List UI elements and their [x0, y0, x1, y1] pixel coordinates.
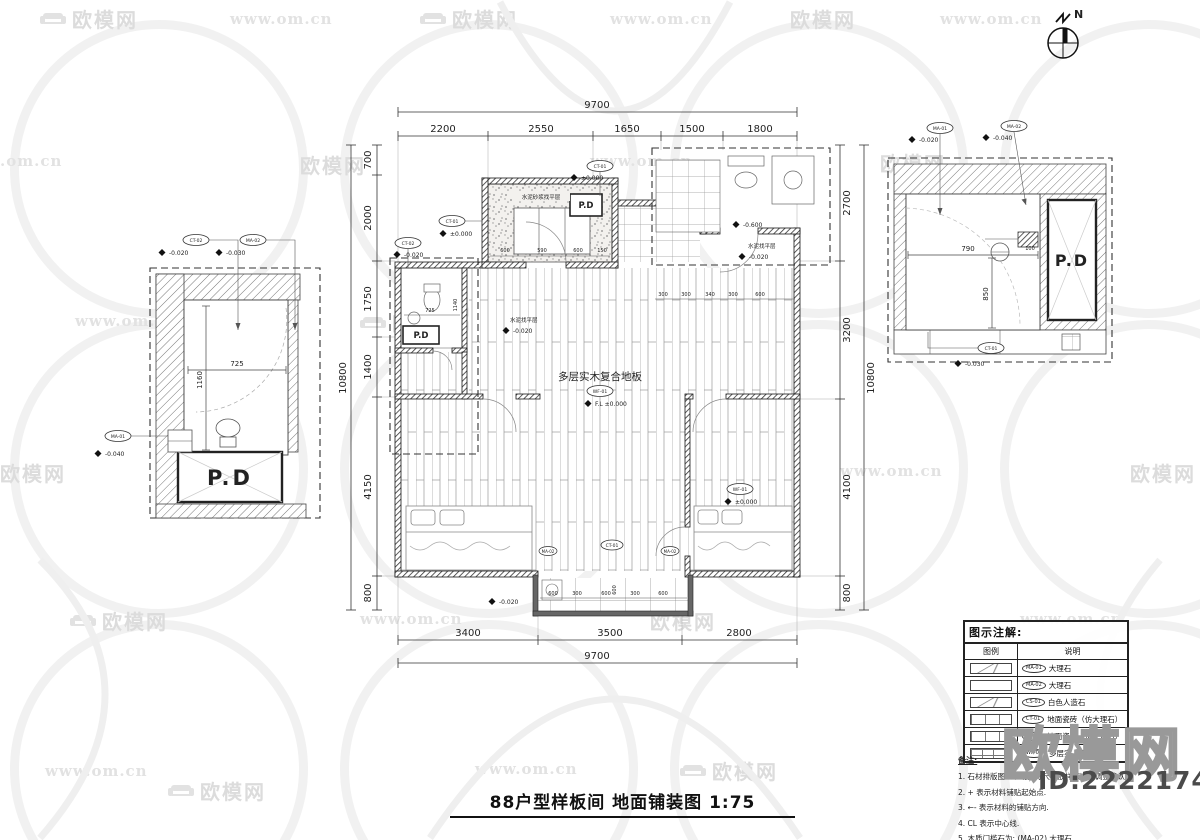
svg-text:300: 300: [572, 591, 582, 597]
svg-text:800: 800: [842, 583, 853, 602]
svg-text:MA-02: MA-02: [1007, 124, 1021, 130]
svg-text:-0.020: -0.020: [513, 328, 533, 335]
material-code: MA-02: [1022, 681, 1046, 690]
north-label: N: [1074, 8, 1083, 21]
svg-text:WF-01: WF-01: [733, 487, 748, 493]
svg-text:水泥找平层: 水泥找平层: [748, 242, 776, 250]
svg-text:CT-01: CT-01: [985, 346, 998, 352]
dim-chain-right: [800, 145, 869, 610]
floor-main-label: 多层实木复合地板: [558, 370, 642, 383]
svg-text:1500: 1500: [679, 124, 704, 135]
swatch-marble: [970, 663, 1012, 674]
svg-text:2200: 2200: [430, 124, 455, 135]
svg-text:F.L ±0.000: F.L ±0.000: [595, 401, 627, 408]
svg-text:3400: 3400: [455, 628, 480, 639]
dim-text-top: 9700 2200 2550 1650 1500 1800: [430, 100, 772, 135]
svg-text:-0.020: -0.020: [169, 250, 189, 257]
svg-text:3500: 3500: [597, 628, 622, 639]
svg-text:300: 300: [630, 591, 640, 597]
svg-text:4100: 4100: [842, 474, 853, 499]
svg-text:600: 600: [500, 248, 510, 254]
svg-text:-0.040: -0.040: [105, 451, 125, 458]
left-detail: P.D 725 1160 CT-02 -0.020 MA-02: [95, 235, 321, 519]
svg-text:725: 725: [425, 308, 435, 314]
svg-text:2550: 2550: [528, 124, 553, 135]
svg-text:600: 600: [658, 591, 668, 597]
svg-text:10800: 10800: [866, 362, 877, 394]
legend-title: 图示注解:: [965, 622, 1127, 644]
svg-text:725: 725: [230, 360, 243, 368]
svg-text:10800: 10800: [338, 362, 349, 394]
svg-text:340: 340: [705, 292, 715, 298]
svg-text:1400: 1400: [363, 354, 374, 379]
material-code: MA-01: [1022, 664, 1046, 673]
pd-label-bath: P.D: [414, 331, 429, 341]
svg-text:-0.030: -0.030: [226, 250, 246, 257]
svg-text:9700: 9700: [584, 651, 609, 662]
svg-text:CT-02: CT-02: [190, 238, 203, 244]
north-arrow: N: [1048, 8, 1083, 58]
svg-text:600: 600: [548, 591, 558, 597]
svg-text:-0.020: -0.020: [499, 599, 519, 606]
svg-text:-0.020: -0.020: [749, 254, 769, 261]
svg-text:600: 600: [601, 591, 611, 597]
note-item: 5. 木质门槛石为: (MA-02) 大理石: [958, 831, 1183, 840]
svg-text:600: 600: [573, 248, 583, 254]
note-item: 3. ←- 表示材料的铺贴方向.: [958, 800, 1183, 815]
legend-row: MA-02大理石: [965, 677, 1127, 694]
svg-text:WF-01: WF-01: [593, 389, 608, 395]
svg-text:300: 300: [728, 292, 738, 298]
svg-text:850: 850: [982, 287, 990, 300]
svg-text:600: 600: [612, 585, 618, 595]
svg-text:±0.000: ±0.000: [735, 499, 757, 506]
svg-text:300: 300: [658, 292, 668, 298]
svg-text:300: 300: [681, 292, 691, 298]
svg-text:3200: 3200: [842, 317, 853, 342]
svg-text:700: 700: [363, 150, 374, 169]
dim-text-left: 700 2000 1750 1400 4150 800 10800: [338, 150, 374, 602]
dim-text-right: 2700 3200 4100 800 10800: [842, 190, 877, 602]
svg-text:CT-01: CT-01: [594, 164, 607, 170]
pd-label-kitchen: P.D: [579, 201, 594, 211]
svg-text:1650: 1650: [614, 124, 639, 135]
svg-text:150: 150: [597, 248, 607, 254]
svg-text:±0.000: ±0.000: [581, 175, 603, 182]
bed-left: [406, 506, 532, 570]
bed-right: [694, 506, 792, 570]
svg-text:-0.600: -0.600: [743, 222, 763, 229]
svg-text:100: 100: [1025, 246, 1035, 252]
svg-text:1140: 1140: [453, 299, 459, 312]
svg-text:CT-01: CT-01: [446, 219, 459, 225]
svg-text:-0.040: -0.040: [993, 135, 1013, 142]
svg-text:CT-02: CT-02: [402, 241, 415, 247]
svg-text:2000: 2000: [363, 205, 374, 230]
svg-text:MA-01: MA-01: [933, 126, 947, 132]
material-code: CS-01: [1022, 698, 1045, 707]
svg-text:CT-01: CT-01: [606, 543, 619, 549]
svg-text:MA-02: MA-02: [542, 549, 555, 554]
legend-row: MA-01大理石: [965, 660, 1127, 677]
pd-label-right-detail: P.D: [1055, 251, 1089, 270]
svg-text:2800: 2800: [726, 628, 751, 639]
note-item: 4. CL 表示中心线.: [958, 816, 1183, 831]
svg-text:1750: 1750: [363, 286, 374, 311]
legend-col-desc: 说明: [1018, 644, 1127, 659]
asset-id: ID:2222174: [1038, 766, 1200, 795]
pd-label-left-detail: P.D: [207, 466, 253, 490]
svg-text:590: 590: [537, 248, 547, 254]
svg-text:600: 600: [755, 292, 765, 298]
svg-text:9700: 9700: [584, 100, 609, 111]
sheet-title: 88户型样板间 地面铺装图 1:75: [450, 788, 795, 818]
svg-text:1160: 1160: [196, 371, 204, 389]
swatch-marble: [970, 697, 1012, 708]
svg-text:-0.030: -0.030: [965, 361, 985, 368]
svg-text:800: 800: [363, 583, 374, 602]
svg-text:4150: 4150: [363, 474, 374, 499]
kitchen-note: 水泥砂浆找平层: [522, 193, 561, 201]
dim-text-bottom: 3400 3500 2800 9700: [455, 628, 751, 662]
svg-text:±0.000: ±0.000: [450, 231, 472, 238]
legend-col-symbol: 图例: [965, 644, 1018, 659]
svg-text:-0.020: -0.020: [919, 137, 939, 144]
swatch-plain: [970, 680, 1012, 691]
legend-header: 图例 说明: [965, 644, 1127, 660]
svg-text:水泥找平层: 水泥找平层: [510, 316, 538, 324]
right-detail: P.D 790 100 850 MA-01 -0.020 MA-02: [888, 121, 1112, 369]
svg-text:MA-01: MA-01: [111, 434, 125, 440]
svg-text:2700: 2700: [842, 190, 853, 215]
svg-text:MA-02: MA-02: [246, 238, 260, 244]
svg-text:1800: 1800: [747, 124, 772, 135]
svg-text:790: 790: [961, 245, 974, 253]
cad-sheet: 欧模网 www.om.cn 欧模网 www.om.cn 欧模网 www.om.c…: [0, 0, 1200, 840]
svg-text:MA-02: MA-02: [664, 549, 677, 554]
svg-text:-0.020: -0.020: [404, 252, 424, 259]
